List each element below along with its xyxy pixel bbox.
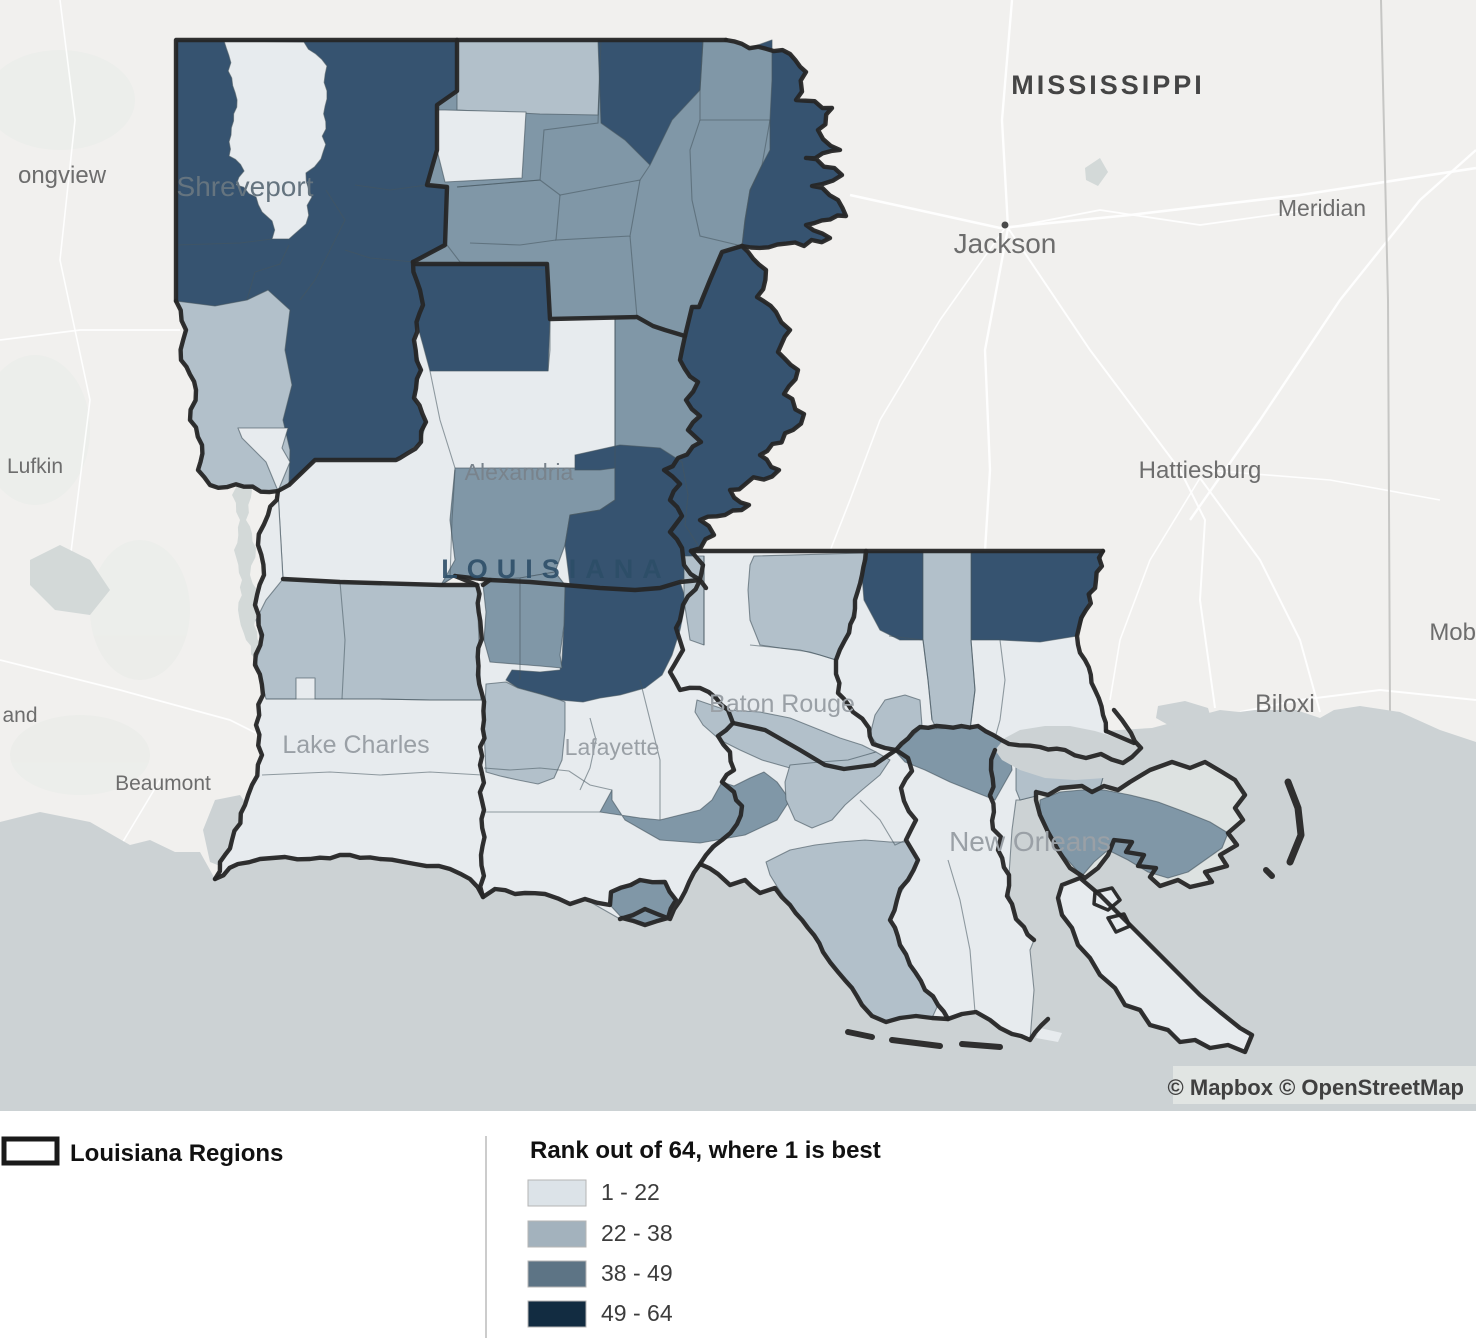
svg-text:Rank out of 64, where 1 is bes: Rank out of 64, where 1 is best: [530, 1137, 881, 1164]
svg-text:and: and: [2, 704, 37, 727]
svg-text:Lufkin: Lufkin: [7, 455, 63, 478]
svg-text:Meridian: Meridian: [1278, 195, 1366, 221]
svg-text:Hattiesburg: Hattiesburg: [1139, 457, 1262, 484]
svg-text:LOUISIANA: LOUISIANA: [441, 554, 671, 584]
svg-text:Jackson: Jackson: [954, 228, 1057, 259]
svg-text:Biloxi: Biloxi: [1255, 690, 1315, 718]
svg-text:Beaumont: Beaumont: [115, 772, 211, 795]
svg-text:1 - 22: 1 - 22: [601, 1179, 660, 1205]
svg-text:Mob: Mob: [1429, 619, 1476, 646]
svg-text:New Orleans: New Orleans: [949, 826, 1111, 857]
svg-text:22 - 38: 22 - 38: [601, 1220, 673, 1246]
svg-text:49 - 64: 49 - 64: [601, 1300, 673, 1326]
svg-text:Louisiana Regions: Louisiana Regions: [70, 1140, 283, 1167]
svg-text:Lake Charles: Lake Charles: [282, 731, 429, 759]
svg-text:© Mapbox © OpenStreetMap: © Mapbox © OpenStreetMap: [1168, 1075, 1464, 1100]
svg-text:Lafayette: Lafayette: [565, 734, 660, 760]
svg-text:MISSISSIPPI: MISSISSIPPI: [1011, 70, 1205, 100]
svg-text:Alexandria: Alexandria: [465, 459, 574, 485]
svg-text:38 - 49: 38 - 49: [601, 1260, 673, 1286]
svg-text:ongview: ongview: [18, 162, 107, 189]
svg-text:Shreveport: Shreveport: [177, 171, 314, 202]
svg-text:Baton Rouge: Baton Rouge: [709, 690, 855, 718]
